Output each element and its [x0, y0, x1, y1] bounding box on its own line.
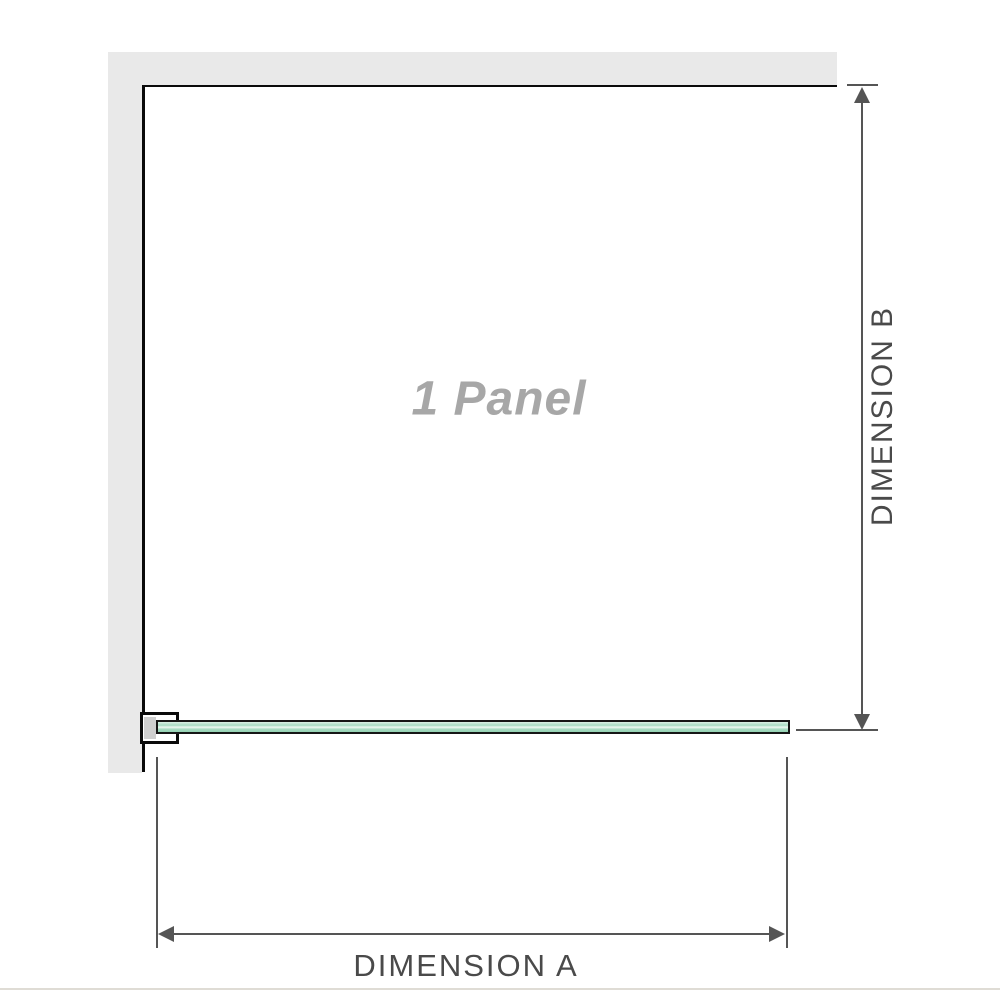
arrow-right-icon: [769, 926, 785, 942]
arrow-up-icon: [854, 87, 870, 103]
panel-count-label: 1 Panel: [411, 372, 586, 427]
dimension-a-label: DIMENSION A: [353, 948, 578, 984]
wall-top-section: [108, 52, 837, 85]
arrow-down-icon: [854, 714, 870, 730]
dimension-b-bottom-tick: [796, 729, 878, 731]
dimension-a-line: [161, 933, 783, 935]
panel-outline: [142, 85, 837, 772]
dimension-b-label: DIMENSION B: [866, 306, 900, 526]
bottom-divider-line: [0, 988, 1000, 990]
dimension-a-left-extension: [156, 757, 158, 948]
dimension-b-line: [861, 90, 863, 720]
clamp-gasket-pad: [144, 717, 156, 739]
wall-side-section: [108, 52, 142, 773]
dimension-b-top-tick: [847, 84, 878, 86]
glass-panel-bar: [156, 720, 790, 734]
dimension-a-right-extension: [786, 757, 788, 948]
arrow-left-icon: [158, 926, 174, 942]
shower-panel-diagram: 1 Panel DIMENSION B DIMENSION A: [0, 0, 1000, 1000]
